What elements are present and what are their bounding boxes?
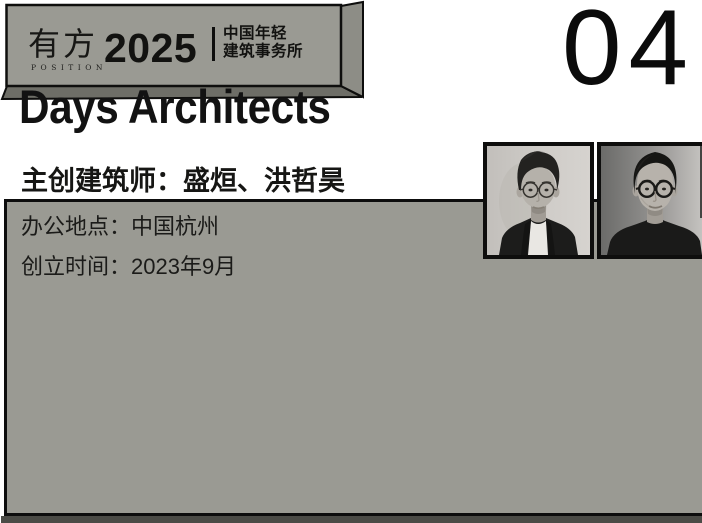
right-portrait-frame: [597, 142, 702, 259]
left-portrait-frame: [483, 142, 594, 259]
banner-tagline-line1: 中国年轻: [223, 25, 303, 43]
right-portrait-photo: [601, 146, 702, 255]
architects-line: 主创建筑师：盛烜、洪哲昊: [21, 168, 345, 195]
left-portrait-photo: [487, 146, 590, 255]
banner-tagline: 中国年轻 建筑事务所: [223, 25, 303, 61]
profile-card-shadow: [1, 516, 702, 523]
banner-tagline-line2: 建筑事务所: [223, 43, 303, 61]
location-line: 办公地点：中国杭州: [21, 216, 219, 238]
portrait-photos: [483, 142, 702, 259]
page-number: 04: [562, 0, 695, 101]
banner-divider: [212, 27, 215, 61]
founded-line: 创立时间：2023年9月: [21, 256, 236, 278]
banner-year: 2025: [104, 28, 197, 69]
slide: 有方 POSITION 2025 中国年轻 建筑事务所 04 Days Arch…: [0, 0, 702, 523]
banner-logo-en: POSITION: [31, 64, 107, 72]
banner-logo-cn: 有方: [28, 28, 98, 60]
firm-name-title: Days Architects: [19, 83, 330, 130]
